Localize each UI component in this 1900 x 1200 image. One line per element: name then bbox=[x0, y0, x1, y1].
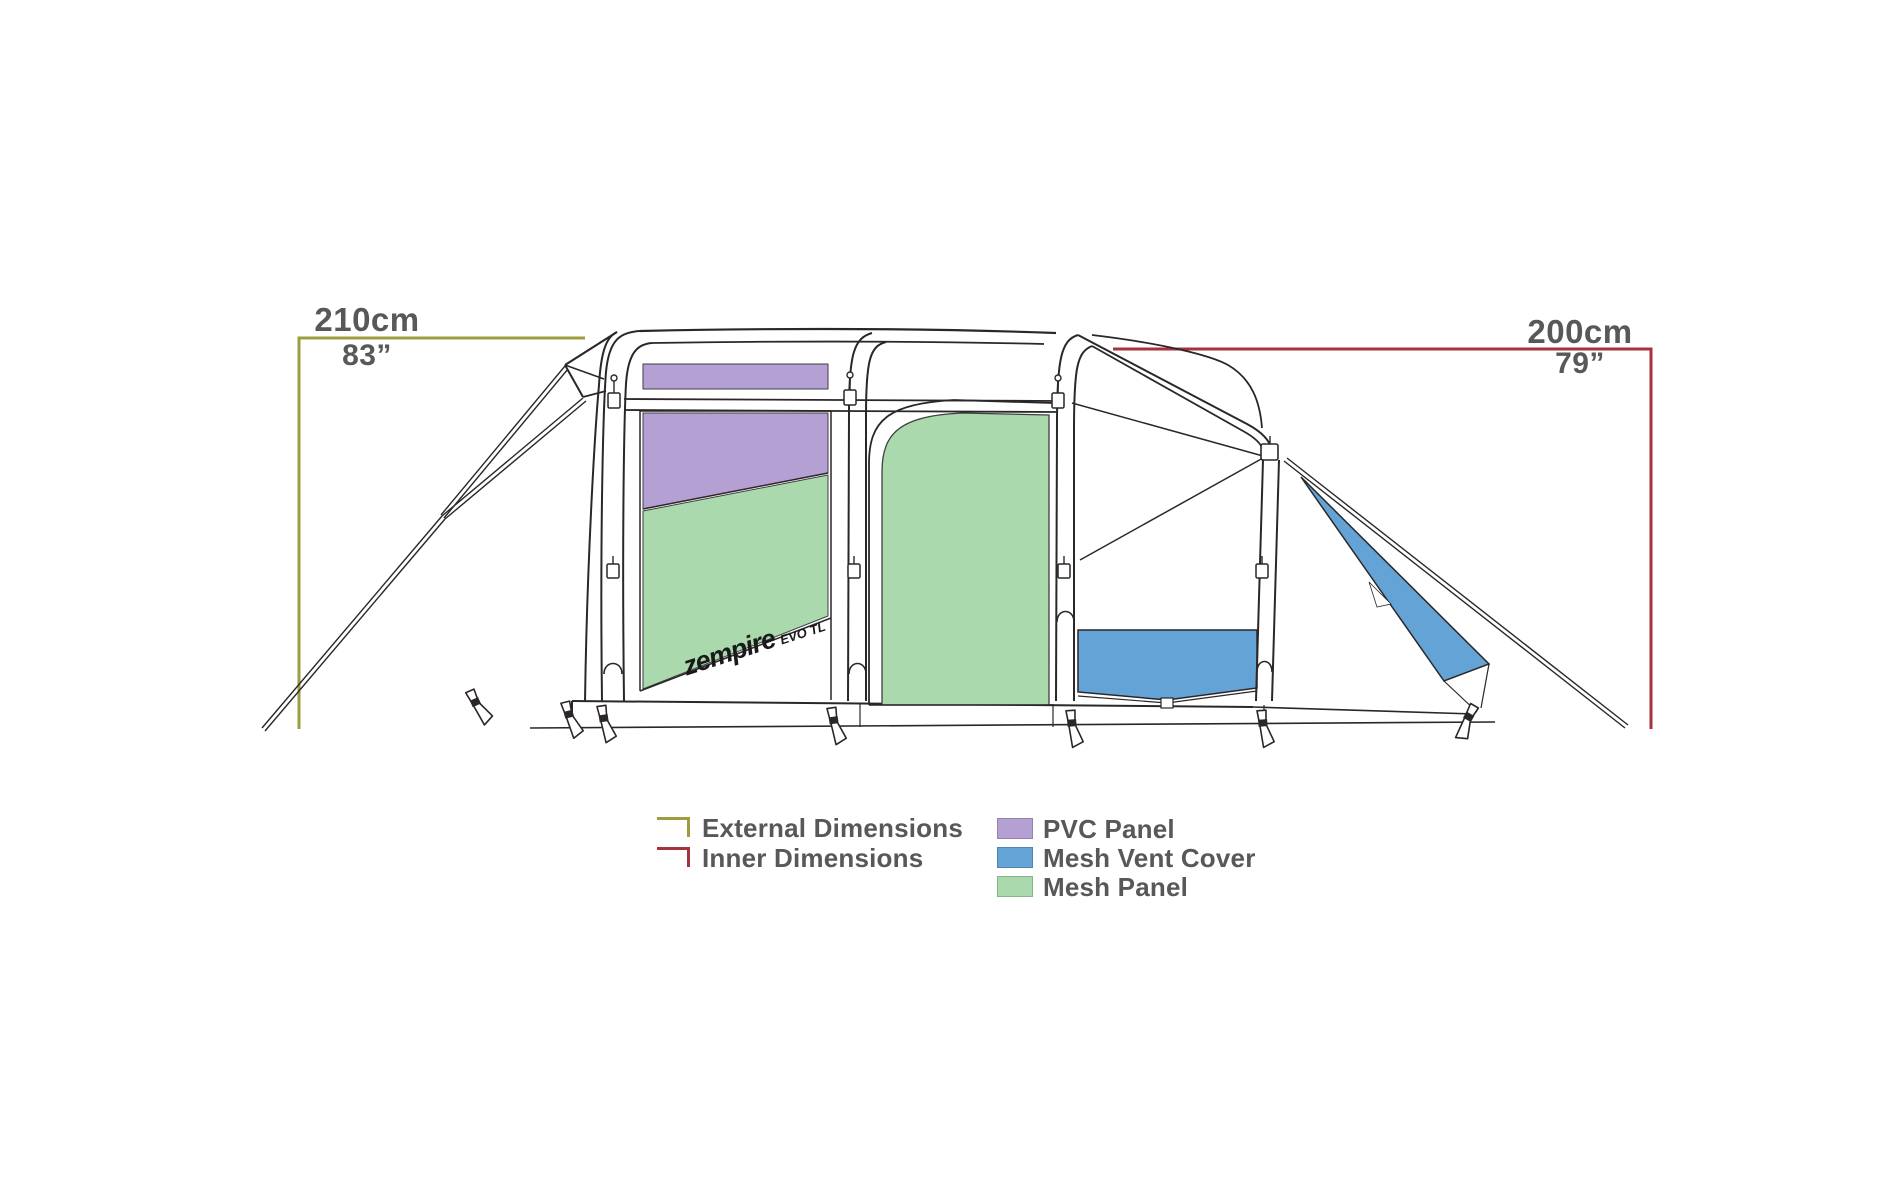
mesh-vent-cover-legend-label: Mesh Vent Cover bbox=[1043, 845, 1256, 871]
inner-dimensions-legend-label: Inner Dimensions bbox=[702, 845, 923, 871]
mesh-vent-cover-swatch bbox=[997, 847, 1033, 868]
door-mesh-panel bbox=[882, 413, 1049, 705]
mesh-vent-cover-rect bbox=[1078, 630, 1257, 708]
pvc-panel-top-strip bbox=[643, 364, 828, 389]
external-dimension-in-label: 83” bbox=[267, 341, 467, 371]
pvc-panel-legend-label: PVC Panel bbox=[1043, 816, 1175, 842]
tent-line-art bbox=[0, 0, 1900, 1200]
external-dimensions-legend-label: External Dimensions bbox=[702, 815, 963, 841]
inner-dimensions-legend-icon bbox=[657, 847, 690, 867]
mesh-panel-swatch bbox=[997, 876, 1033, 897]
pvc-panel-swatch bbox=[997, 818, 1033, 839]
inner-dimension-in-label: 79” bbox=[1480, 349, 1680, 379]
door bbox=[869, 400, 1052, 705]
mesh-panel-legend-label: Mesh Panel bbox=[1043, 874, 1188, 900]
hub-clip bbox=[1261, 444, 1278, 460]
inner-dimension-cm-label: 200cm bbox=[1480, 315, 1680, 348]
external-dimension-line bbox=[299, 338, 585, 729]
external-dimensions-legend-icon bbox=[657, 817, 690, 837]
external-dimension-cm-label: 210cm bbox=[267, 303, 467, 336]
